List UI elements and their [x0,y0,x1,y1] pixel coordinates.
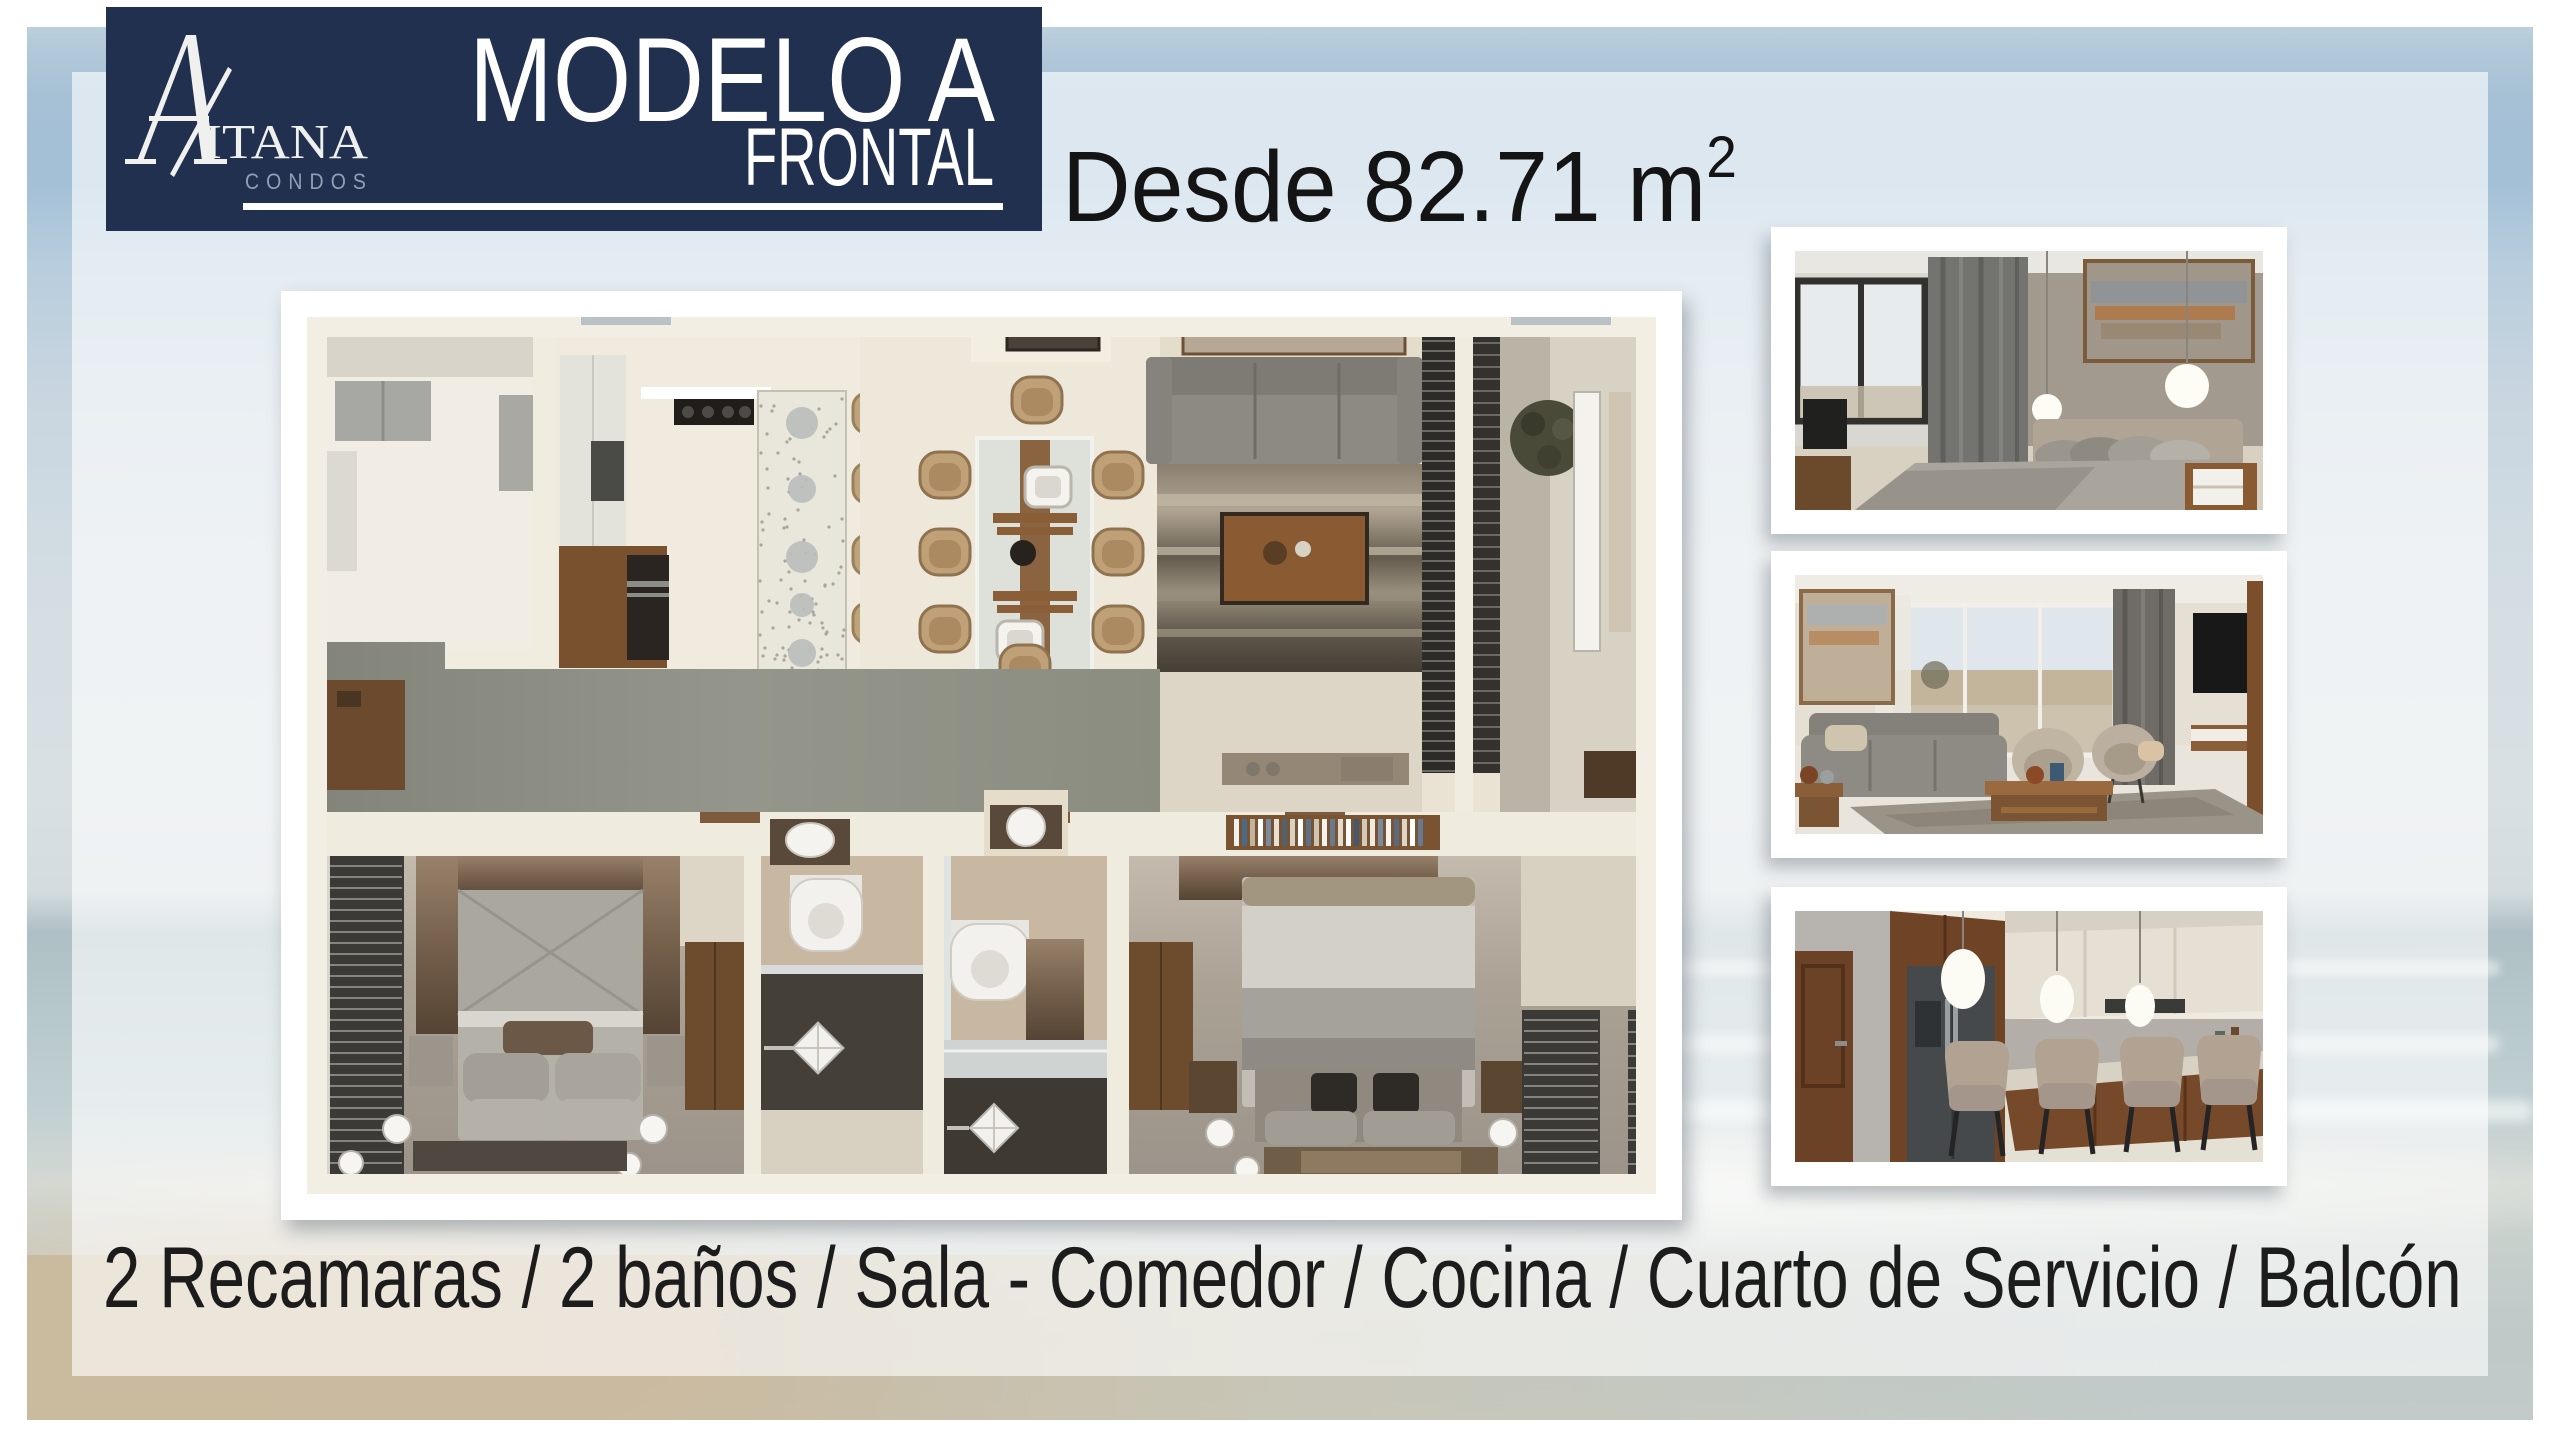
svg-text:CONDOS: CONDOS [245,169,373,194]
svg-text:FRONTAL: FRONTAL [744,112,994,203]
svg-text:ITANA: ITANA [204,114,369,169]
